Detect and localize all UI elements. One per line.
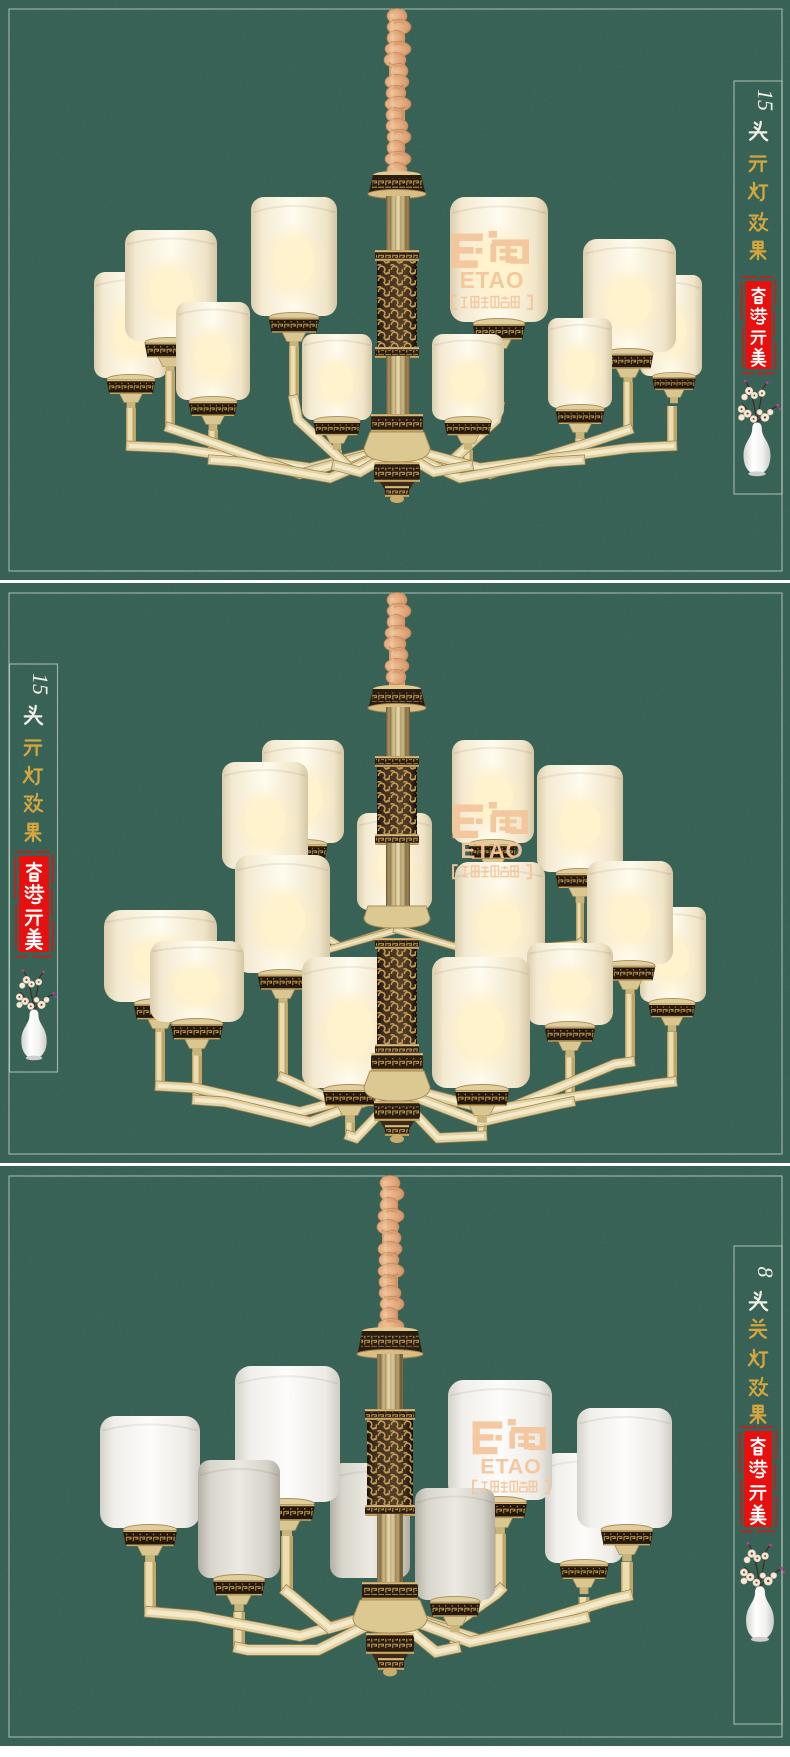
svg-text:15: 15 [28, 673, 53, 695]
svg-text:8: 8 [753, 1267, 778, 1278]
svg-text:15: 15 [753, 89, 778, 111]
